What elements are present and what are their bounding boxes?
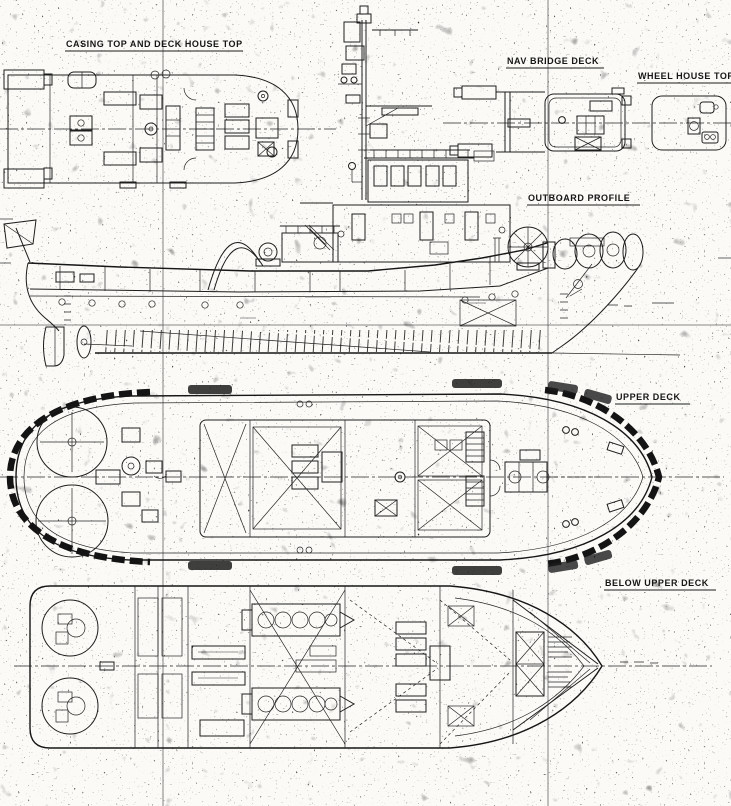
scanned-ga-drawing-sheet: CASING TOP AND DECK HOUSE TOP NAV BRIDGE…: [0, 0, 731, 806]
ga-drawing-canvas: CASING TOP AND DECK HOUSE TOP NAV BRIDGE…: [0, 0, 731, 806]
scan-noise-coarse: [0, 0, 731, 806]
